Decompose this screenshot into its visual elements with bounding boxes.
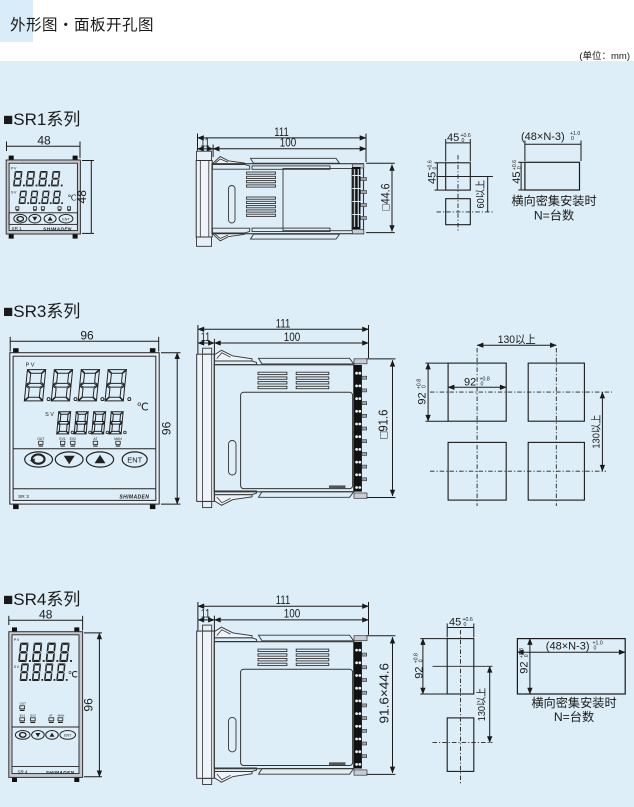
svg-text:96: 96 — [81, 698, 95, 712]
svg-text:N=台数: N=台数 — [554, 709, 594, 724]
svg-text:96: 96 — [160, 421, 174, 435]
svg-text:100: 100 — [284, 330, 301, 344]
svg-text:45: 45 — [427, 172, 439, 184]
svg-text:11: 11 — [201, 330, 211, 344]
svg-text:(单位：mm): (单位：mm) — [579, 50, 630, 62]
svg-text:48: 48 — [37, 134, 51, 148]
svg-text:92: 92 — [519, 662, 531, 674]
svg-text:EV1: EV1 — [20, 713, 26, 717]
svg-text:℃: ℃ — [68, 669, 78, 679]
svg-text:SV: SV — [14, 665, 20, 669]
svg-text:0: 0 — [524, 654, 530, 658]
svg-text:96: 96 — [80, 328, 94, 342]
svg-text:MAN: MAN — [58, 713, 65, 717]
svg-text:□44.6: □44.6 — [379, 183, 393, 210]
svg-text:0: 0 — [570, 136, 574, 142]
svg-text:ENT: ENT — [127, 455, 142, 464]
svg-text:100: 100 — [280, 136, 297, 150]
svg-text:SR 1: SR 1 — [12, 226, 23, 231]
svg-text:SR 4: SR 4 — [17, 770, 28, 775]
svg-text:130以上: 130以上 — [591, 415, 603, 449]
svg-text:(48×N-3): (48×N-3) — [521, 131, 565, 143]
svg-text:ENT: ENT — [62, 217, 70, 221]
svg-text:(48×N-3): (48×N-3) — [546, 640, 590, 652]
svg-text:92: 92 — [464, 376, 476, 388]
svg-text:45: 45 — [447, 132, 459, 144]
svg-text:外形图・面板开孔图: 外形图・面板开孔图 — [10, 16, 154, 34]
svg-text:SV: SV — [11, 191, 17, 195]
svg-text:横向密集安装时: 横向密集安装时 — [511, 193, 596, 208]
svg-text:横向密集安装时: 横向密集安装时 — [531, 695, 616, 710]
svg-text:N=台数: N=台数 — [534, 207, 574, 222]
svg-text:11: 11 — [200, 136, 210, 150]
svg-text:AT: AT — [93, 437, 97, 441]
svg-text:■SR3系列: ■SR3系列 — [3, 302, 80, 321]
svg-text:0: 0 — [422, 385, 428, 389]
svg-text:92: 92 — [416, 392, 428, 404]
svg-text:60以上: 60以上 — [475, 180, 487, 209]
svg-text:OUT: OUT — [37, 437, 44, 441]
svg-text:PV: PV — [14, 638, 20, 642]
svg-text:0: 0 — [593, 646, 597, 652]
svg-text:91.6×44.6: 91.6×44.6 — [376, 663, 391, 724]
svg-text:0: 0 — [480, 382, 484, 388]
svg-text:45: 45 — [511, 171, 523, 183]
svg-text:SHIMADEN: SHIMADEN — [46, 770, 75, 776]
svg-text:OUT: OUT — [20, 702, 27, 706]
svg-text:EV2: EV2 — [30, 713, 36, 717]
svg-text:SHIMADEN: SHIMADEN — [43, 227, 72, 233]
svg-text:111: 111 — [276, 316, 291, 330]
svg-text:EV2: EV2 — [70, 437, 77, 441]
svg-text:PV: PV — [26, 363, 36, 369]
svg-text:130以上: 130以上 — [476, 688, 488, 722]
svg-text:ENT: ENT — [64, 734, 72, 738]
svg-text:45: 45 — [449, 617, 461, 629]
svg-text:EV1: EV1 — [59, 437, 66, 441]
svg-text:■SR4系列: ■SR4系列 — [3, 590, 80, 609]
svg-text:48: 48 — [39, 607, 53, 621]
svg-text:0: 0 — [463, 622, 467, 628]
svg-text:■SR1系列: ■SR1系列 — [3, 110, 80, 129]
svg-text:0: 0 — [517, 166, 523, 170]
svg-text:0: 0 — [432, 166, 438, 170]
svg-text:AT: AT — [49, 713, 53, 717]
svg-text:0: 0 — [419, 659, 425, 663]
svg-text:□91.6: □91.6 — [376, 409, 390, 438]
svg-text:SR 3: SR 3 — [18, 494, 29, 500]
svg-text:92: 92 — [413, 667, 425, 679]
svg-text:SV: SV — [45, 412, 55, 418]
svg-text:MAN: MAN — [114, 437, 122, 441]
svg-text:130以上: 130以上 — [498, 333, 536, 346]
svg-text:48: 48 — [75, 190, 89, 204]
svg-text:SHIMADEN: SHIMADEN — [119, 495, 149, 501]
svg-text:PV: PV — [11, 167, 17, 171]
svg-text:0: 0 — [461, 138, 465, 144]
svg-text:℃: ℃ — [137, 402, 149, 414]
